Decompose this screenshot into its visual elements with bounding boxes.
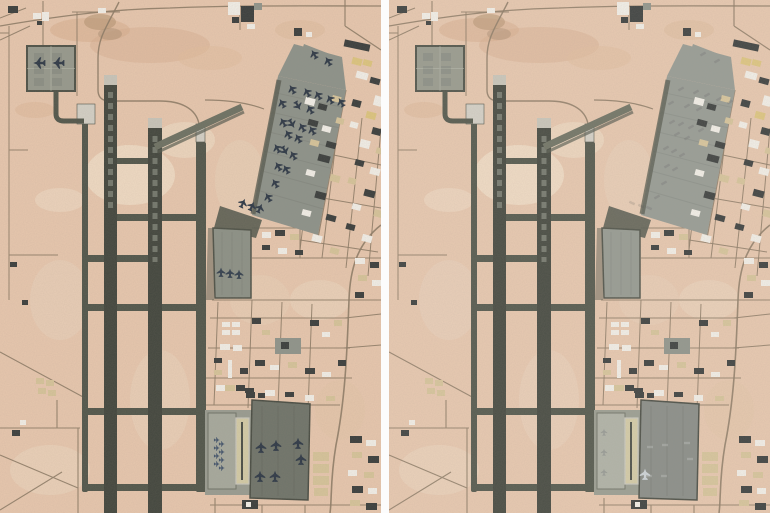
satellite-comparison [0,0,770,513]
satellite-image-after [389,0,770,513]
satellite-image-before [0,0,381,513]
panel-divider [381,0,389,513]
